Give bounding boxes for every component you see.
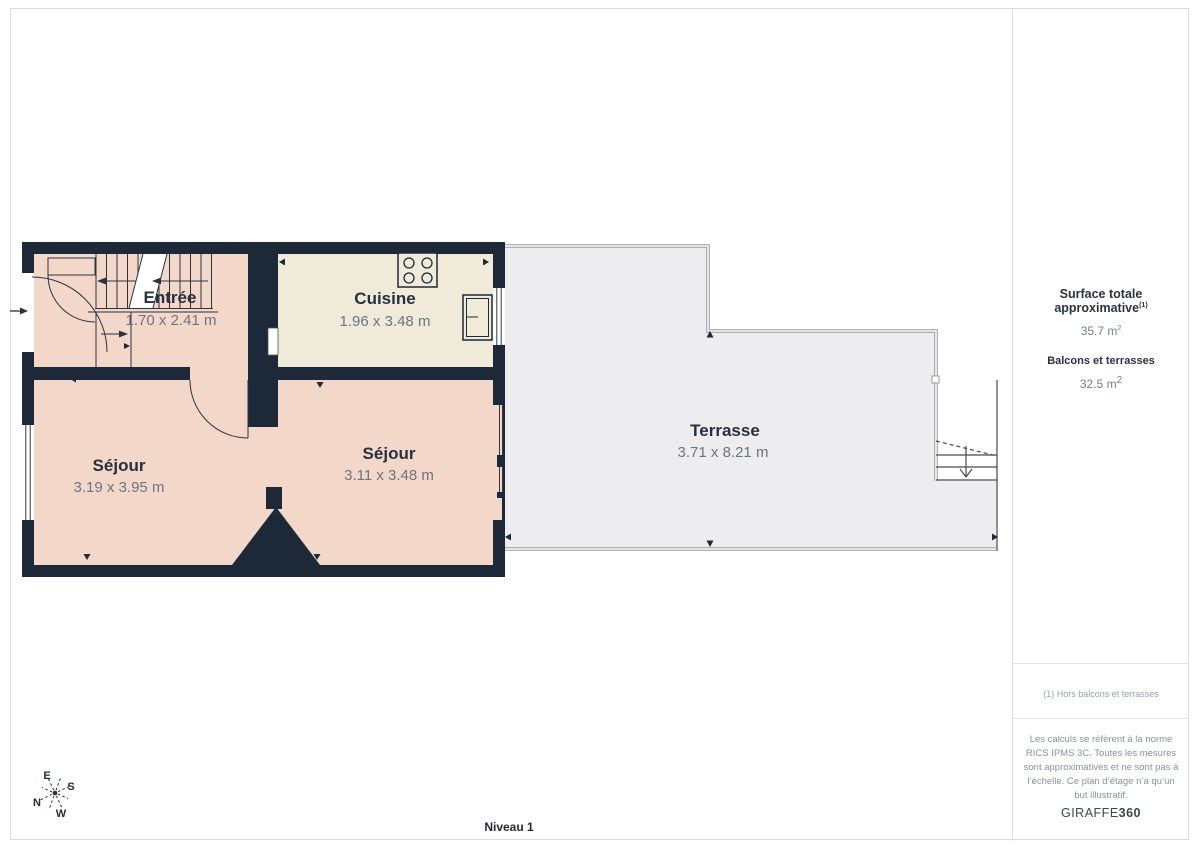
compass-n: N	[33, 797, 41, 809]
room-label-terrasse: Terrasse	[690, 421, 760, 440]
compass-e: E	[43, 770, 50, 782]
window-cuisine	[493, 288, 505, 345]
room-dims-sejour-right: 3.11 x 3.48 m	[344, 467, 434, 484]
room-dims-cuisine: 1.96 x 3.48 m	[340, 313, 431, 330]
surface-total-label: Surface totale approximative(1)	[1013, 287, 1189, 315]
room-dims-sejour-left: 3.19 x 3.95 m	[74, 479, 165, 496]
level-label: Niveau 1	[459, 820, 559, 834]
brand-suffix: 360	[1119, 806, 1141, 820]
stove-icon	[398, 253, 437, 287]
window-sejour-left	[22, 425, 34, 520]
surface-total-footmark: (1)	[1139, 302, 1148, 309]
surface-total-text: Surface totale approximative	[1054, 287, 1142, 315]
surface-total-value-sup: 2	[1117, 325, 1121, 332]
compass-icon: E S N W	[33, 770, 75, 820]
brand-prefix: GIRAFFE	[1061, 806, 1119, 820]
footnote: (1) Hors balcons et terrasses	[1013, 689, 1189, 699]
disclaimer-text: Les calculs se réfèrent à la norme RICS …	[1022, 733, 1180, 803]
gate-marker	[932, 376, 939, 383]
cuisine-door-opening	[268, 328, 278, 355]
surface-total-value-text: 35.7 m	[1081, 324, 1118, 338]
balconies-value-text: 32.5 m	[1080, 377, 1117, 391]
wall-entree-sejour	[34, 367, 190, 380]
room-label-sejour-left: Séjour	[93, 456, 146, 475]
cuisine-floor	[278, 254, 493, 367]
footnote-divider-bottom	[1013, 718, 1189, 719]
room-dims-terrasse: 3.71 x 8.21 m	[678, 444, 769, 461]
building	[10, 242, 505, 577]
room-label-cuisine: Cuisine	[354, 289, 415, 308]
surface-summary: Surface totale approximative(1) 35.7 m2 …	[1013, 287, 1189, 391]
compass-w: W	[56, 808, 67, 820]
fridge-icon	[463, 295, 492, 340]
balconies-value-sup: 2	[1117, 375, 1123, 386]
room-dims-entree: 1.70 x 2.41 m	[126, 312, 217, 329]
surface-total-value: 35.7 m2	[1013, 324, 1189, 338]
compass-s: S	[67, 781, 74, 793]
footnote-divider-top	[1013, 663, 1189, 664]
sidebar: Surface totale approximative(1) 35.7 m2 …	[1013, 0, 1189, 849]
brand-logo: GIRAFFE360	[1013, 806, 1189, 820]
room-label-sejour-right: Séjour	[363, 444, 416, 463]
door-opening-floor	[190, 367, 248, 380]
terrace	[505, 246, 997, 551]
balconies-label: Balcons et terrasses	[1013, 355, 1189, 367]
terrace-stairs-icon	[936, 441, 997, 480]
terrace-floor	[505, 246, 997, 549]
balconies-value: 32.5 m2	[1013, 375, 1189, 391]
room-label-entree: Entrée	[144, 288, 197, 307]
